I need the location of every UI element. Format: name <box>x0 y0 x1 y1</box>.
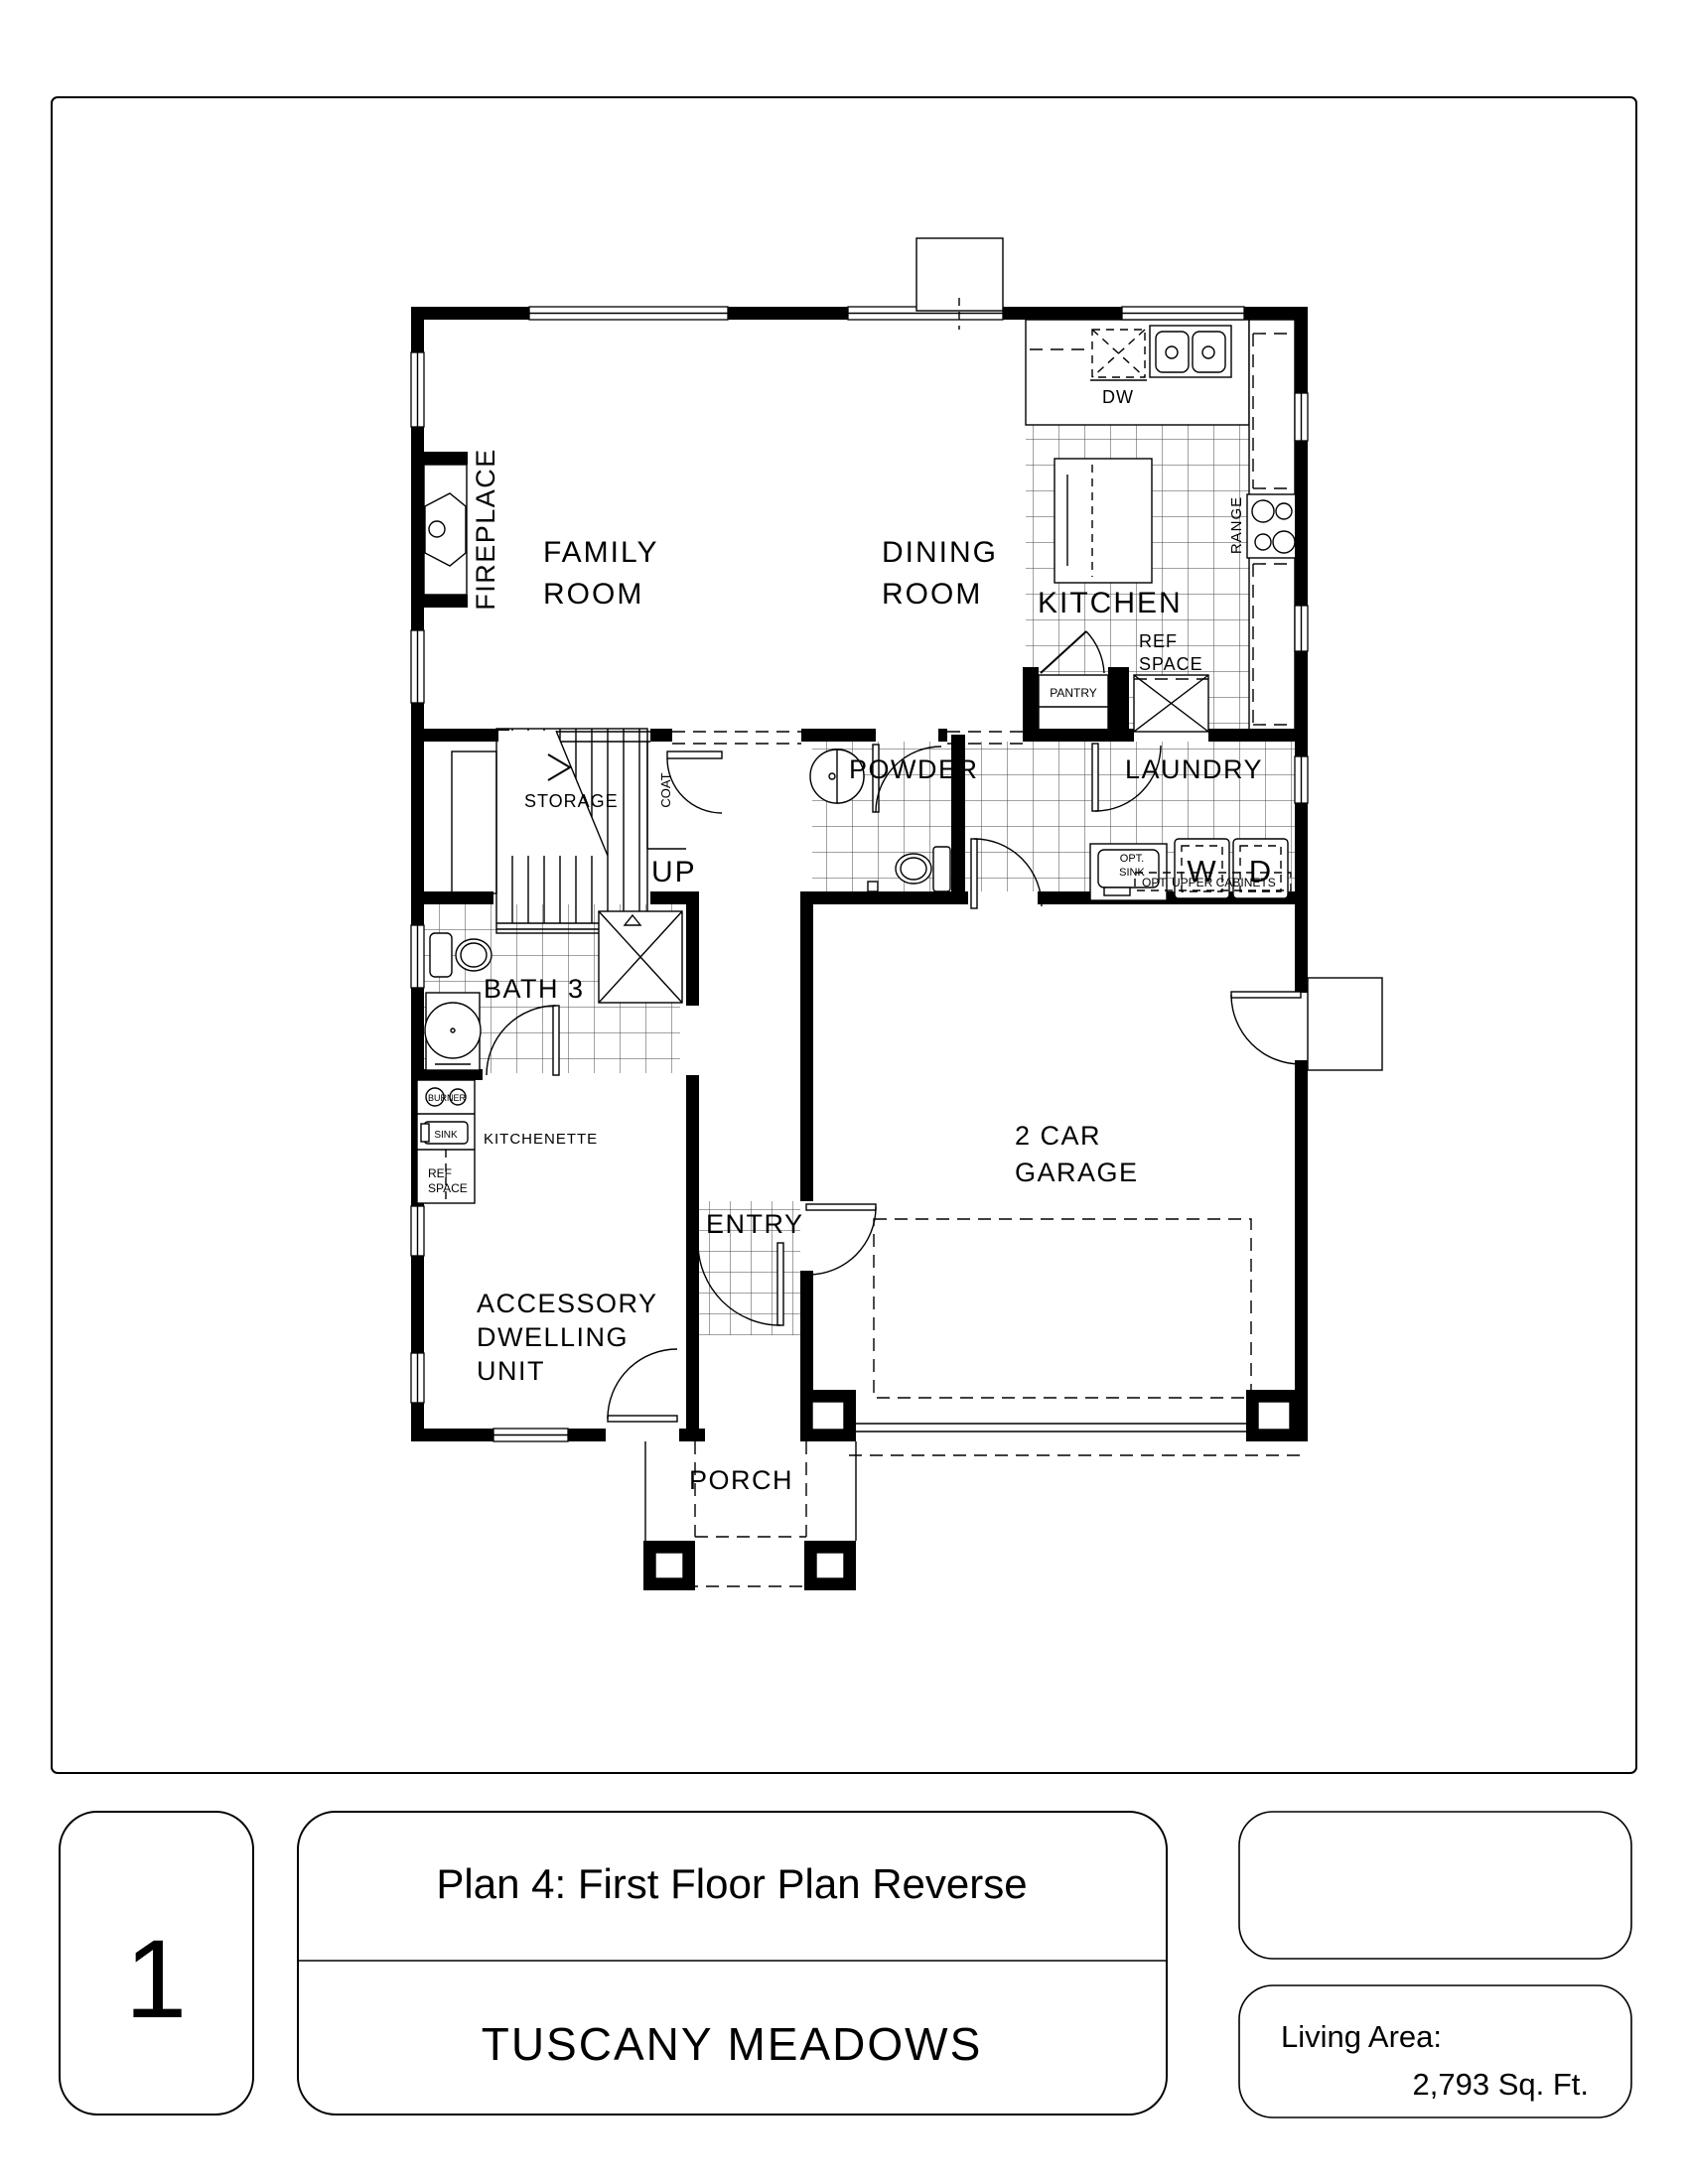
ref-space-label: SPACE <box>1139 654 1203 674</box>
burner-label: BURNER <box>428 1093 467 1103</box>
dining-room-label: ROOM <box>882 578 982 611</box>
entry-label: ENTRY <box>706 1209 804 1239</box>
kitchen-label: KITCHEN <box>1038 587 1183 619</box>
powder-toilet-tank <box>933 847 950 891</box>
bath3-label: BATH 3 <box>484 974 585 1004</box>
storage-label: STORAGE <box>524 791 619 811</box>
opt-upper-cabinets-label: OPT. UPPER CABINETS <box>1142 876 1276 889</box>
adu-label: ACCESSORY <box>477 1289 658 1318</box>
dishwasher <box>1090 330 1147 380</box>
drawing-border <box>52 97 1636 1773</box>
plan-title: Plan 4: First Floor Plan Reverse <box>436 1860 1027 1907</box>
ref-space <box>1134 675 1208 732</box>
garage-label: GARAGE <box>1015 1158 1139 1187</box>
ref-space-label: REF <box>1139 631 1178 651</box>
floor-plan-sheet: FAMILY ROOM DINING ROOM FIREPLACE KITCHE… <box>0 0 1688 2184</box>
title-block: 1 Plan 4: First Floor Plan Reverse TUSCA… <box>60 1812 1631 2117</box>
family-room-label: FAMILY <box>543 536 658 569</box>
sheet-number: 1 <box>125 1917 187 2041</box>
pantry-label: PANTRY <box>1050 686 1097 700</box>
adu-ref-label: REF <box>428 1166 452 1180</box>
range-label: RANGE <box>1228 496 1245 554</box>
kitchenette-sink-label: SINK <box>434 1130 458 1141</box>
garage-label: 2 CAR <box>1015 1121 1101 1151</box>
coat-label: COAT <box>658 772 673 807</box>
dining-room-label: DINING <box>882 536 998 569</box>
adu-label: DWELLING <box>477 1322 629 1352</box>
living-area-label: Living Area: <box>1281 2019 1442 2054</box>
bath3-toilet-tank <box>430 933 452 977</box>
family-room-label: ROOM <box>543 578 643 611</box>
range-cooktop <box>1247 494 1297 558</box>
kitchen-sink <box>1150 326 1231 377</box>
powder-label: POWDER <box>849 754 979 784</box>
title-block-empty-box <box>1239 1812 1631 1959</box>
porch-label: PORCH <box>689 1465 793 1495</box>
living-area-value: 2,793 Sq. Ft. <box>1413 2067 1590 2102</box>
community-name: TUSCANY MEADOWS <box>482 2018 983 2070</box>
kitchen-island <box>1055 459 1152 583</box>
up-label: UP <box>651 856 697 888</box>
dishwasher-label: DW <box>1102 387 1134 407</box>
laundry-label: LAUNDRY <box>1125 754 1263 784</box>
opt-sink-label: OPT. <box>1120 853 1144 865</box>
adu-label: UNIT <box>477 1356 545 1386</box>
fireplace-label: FIREPLACE <box>471 448 500 611</box>
adu-ref-label: SPACE <box>428 1181 468 1195</box>
kitchenette-label: KITCHENETTE <box>484 1131 598 1148</box>
